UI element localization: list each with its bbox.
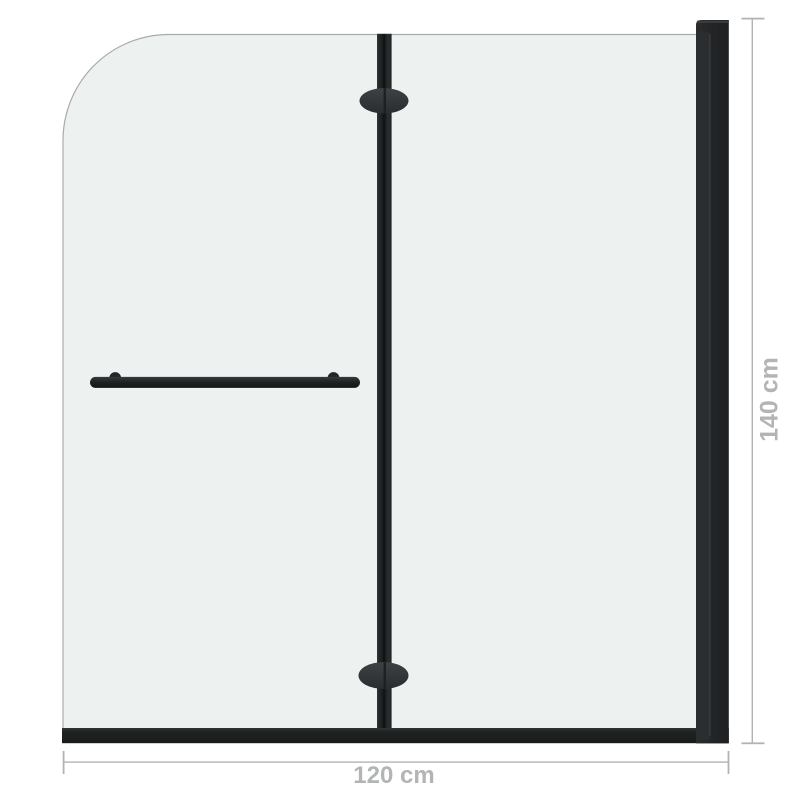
svg-text:140 cm: 140 cm (756, 357, 784, 442)
svg-text:120 cm: 120 cm (353, 762, 434, 789)
